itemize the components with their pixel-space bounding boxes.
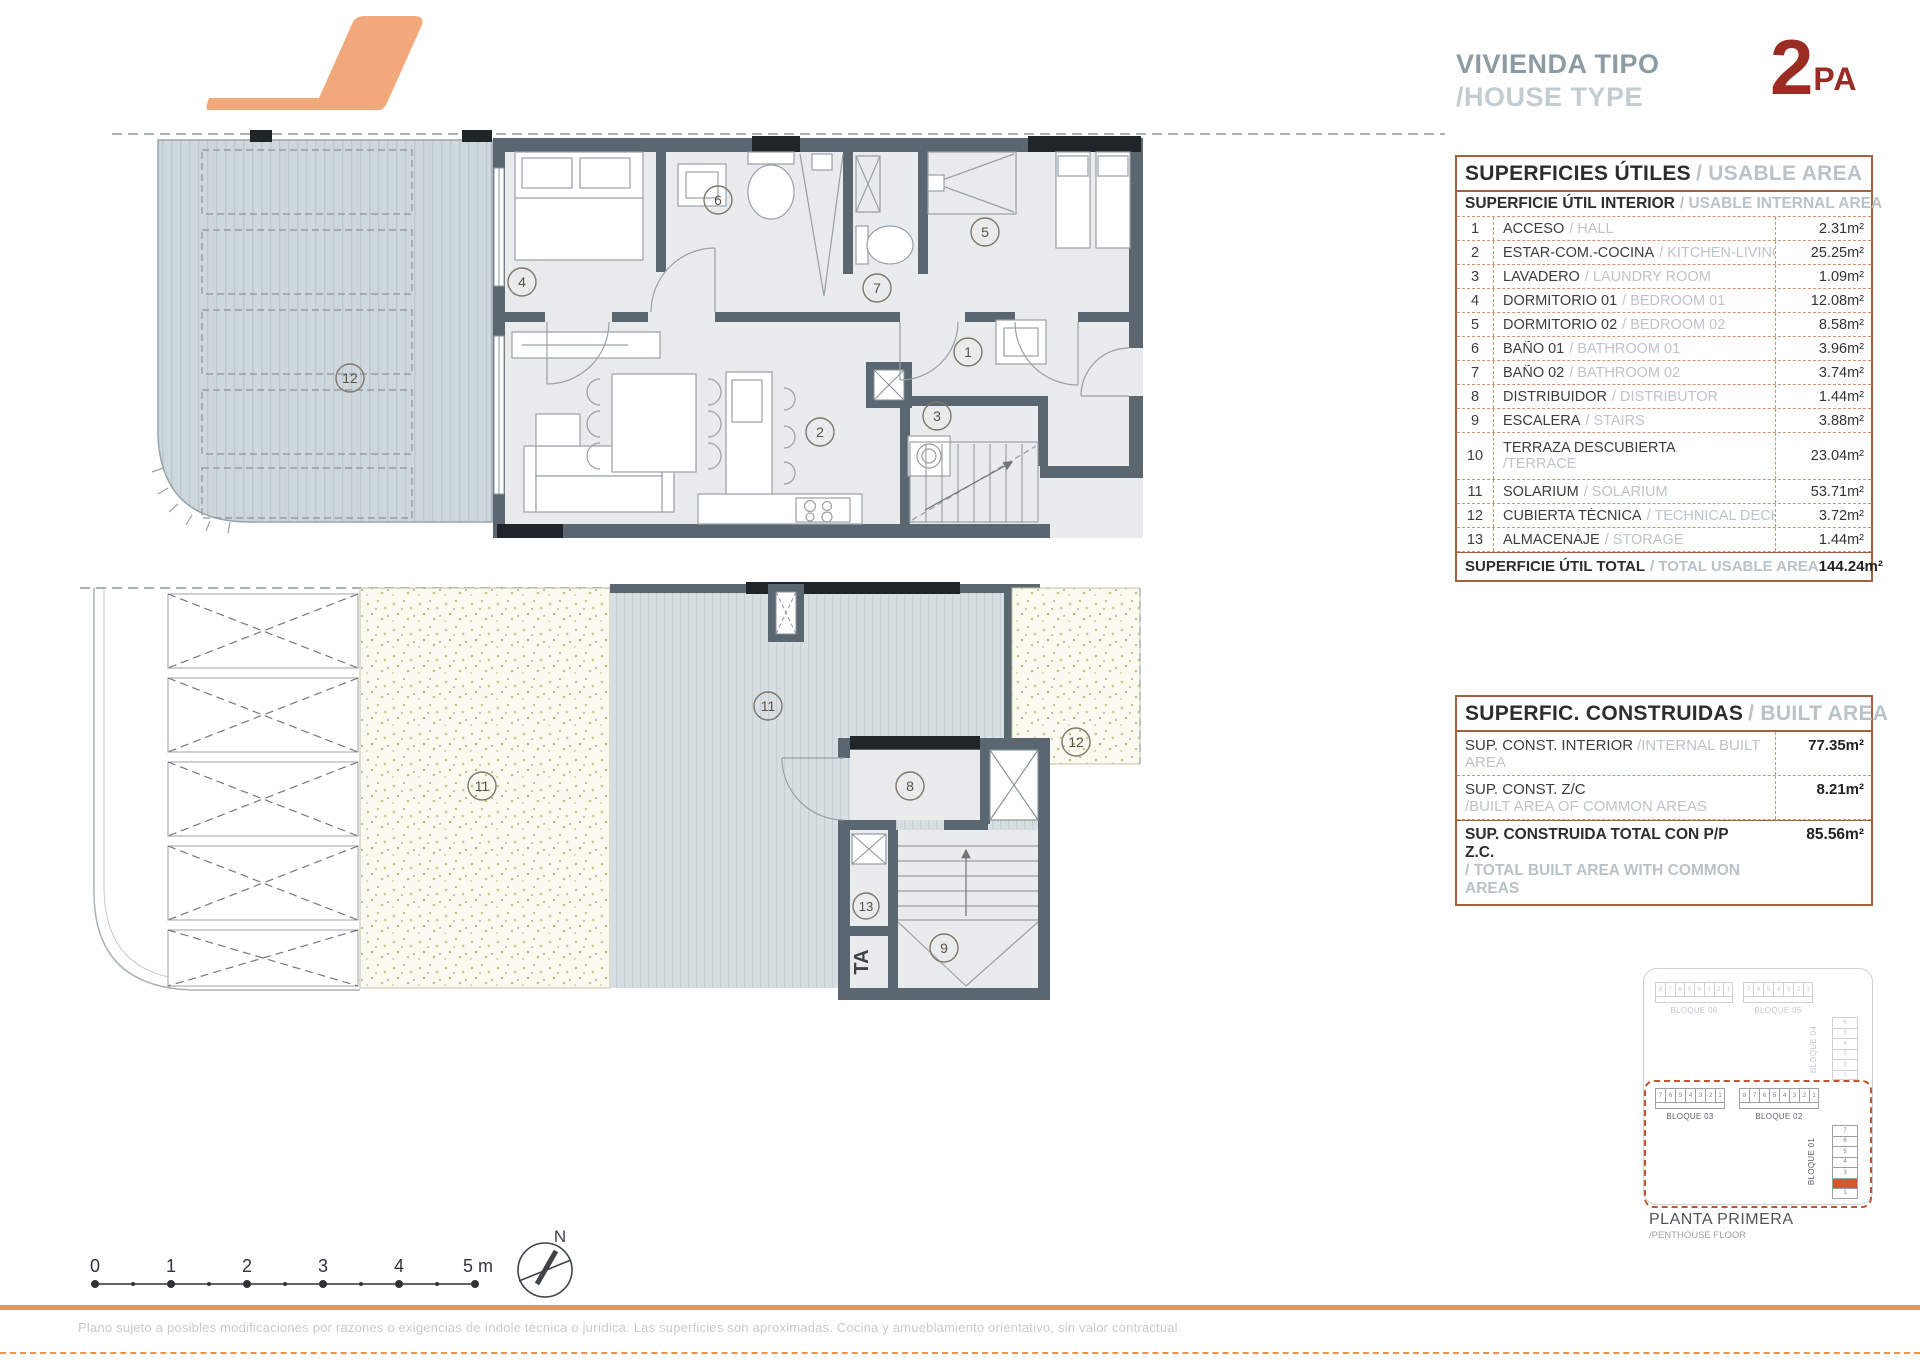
wall-lintel <box>462 130 492 142</box>
built-area-table: SUPERFIC. CONSTRUIDAS/ BUILT AREA SUP. C… <box>1455 695 1873 906</box>
built-row: SUP. CONST. INTERIOR/INTERNAL BUILT AREA… <box>1457 732 1871 776</box>
floor-plans: 12 4 6 7 5 1 3 2 <box>60 116 1460 1016</box>
bloque-05: 7654321 BLOQUE 05 <box>1743 982 1813 1015</box>
scale-tick-label: 3 <box>318 1256 328 1276</box>
logo-swoosh-shape <box>206 16 422 110</box>
area-row: 1ACCESO/ HALL2.31m² <box>1457 217 1871 241</box>
parking-bays <box>168 594 358 986</box>
plan-sheet: VIVIENDA TIPO /HOUSE TYPE 2 PA <box>0 0 1920 1362</box>
area-row: 11SOLARIUM/ SOLARIUM53.71m² <box>1457 480 1871 504</box>
area-row: 4DORMITORIO 01/ BEDROOM 0112.08m² <box>1457 289 1871 313</box>
bloque-02: 87654321 BLOQUE 02 <box>1739 1088 1819 1121</box>
bloque-01: 7 6 5 4 3 2 1 BLOQUE 01 <box>1832 1125 1858 1199</box>
scale-bar: 0 1 2 3 4 5 m <box>70 1240 500 1300</box>
bloque-03: 7654321 BLOQUE 03 <box>1655 1088 1725 1121</box>
built-total-row: SUP. CONSTRUIDA TOTAL CON P/P Z.C./ TOTA… <box>1457 820 1871 904</box>
room-number-label: 1 <box>964 344 972 360</box>
area-row: 8DISTRIBUIDOR/ DISTRIBUTOR1.44m² <box>1457 385 1871 409</box>
scale-tick-label: 5 m <box>463 1256 493 1276</box>
elevator-shaft <box>990 750 1038 820</box>
scale-tick-label: 0 <box>90 1256 100 1276</box>
scale-tick-label: 2 <box>242 1256 252 1276</box>
usable-area-table: SUPERFICIES ÚTILES/ USABLE AREA SUPERFIC… <box>1455 155 1873 582</box>
utility-box <box>852 834 886 864</box>
site-key-plan: 87654321 BLOQUE 06 7654321 BLOQUE 05 654… <box>1643 962 1873 1262</box>
usable-total-row: SUPERFICIE ÚTIL TOTAL/ TOTAL USABLE AREA… <box>1457 552 1871 580</box>
room-number-label: 12 <box>342 370 358 386</box>
house-type-badge: 2 PA <box>1770 28 1857 106</box>
north-compass-icon: N <box>500 1222 590 1312</box>
room-number-label: 11 <box>761 698 776 714</box>
upper-floor-plan: 12 4 6 7 5 1 3 2 <box>112 130 1445 538</box>
wall-lintel <box>850 736 980 749</box>
room-number-label: 5 <box>981 224 989 240</box>
scale-tick-label: 1 <box>166 1256 176 1276</box>
wall-lintel <box>1028 136 1141 152</box>
legal-disclaimer: Plano sujeto a posibles modificaciones p… <box>78 1320 1182 1335</box>
area-row: 5DORMITORIO 02/ BEDROOM 028.58m² <box>1457 313 1871 337</box>
north-label: N <box>554 1227 566 1246</box>
wall-lintel <box>497 524 563 538</box>
area-row: 13ALMACENAJE/ STORAGE1.44m² <box>1457 528 1871 552</box>
wall-lintel <box>752 136 800 152</box>
room-number-label: 4 <box>518 274 526 290</box>
room-number-label: 3 <box>933 408 941 424</box>
area-row: 2ESTAR-COM.-COCINA/ KITCHEN-LIVING25.25m… <box>1457 241 1871 265</box>
room-number-label: 6 <box>714 192 722 208</box>
area-row: 7BAÑO 02/ BATHROOM 023.74m² <box>1457 361 1871 385</box>
area-row: 10TERRAZA DESCUBIERTA/TERRACE23.04m² <box>1457 433 1871 480</box>
title-spanish: VIVIENDA TIPO <box>1456 48 1660 81</box>
page-title: VIVIENDA TIPO /HOUSE TYPE <box>1456 48 1660 114</box>
footer-dashed-line <box>0 1352 1920 1354</box>
wall-lintel <box>250 130 272 142</box>
built-area-title: SUPERFIC. CONSTRUIDAS/ BUILT AREA <box>1457 697 1871 732</box>
chimney-box <box>768 584 804 642</box>
area-row: 9ESCALERA/ STAIRS3.88m² <box>1457 409 1871 433</box>
room-number-label: 9 <box>940 940 948 956</box>
room-number-label: 8 <box>906 778 914 794</box>
site-plan-caption: PLANTA PRIMERA /PENTHOUSE FLOOR <box>1649 1211 1794 1241</box>
room-number-label: 13 <box>859 899 873 914</box>
stairwell-floor <box>898 830 1038 988</box>
room-number-label: 11 <box>475 778 490 794</box>
house-type-number: 2 <box>1770 28 1813 106</box>
bloque-04: 654321 BLOQUE 04 <box>1832 1017 1858 1080</box>
bloque-06: 87654321 BLOQUE 06 <box>1655 982 1733 1015</box>
room-number-label: 2 <box>816 424 824 440</box>
area-row: 3LAVADERO/ LAUNDRY ROOM1.09m² <box>1457 265 1871 289</box>
deck-side-wall <box>1004 584 1012 764</box>
area-row: 6BAÑO 01/ BATHROOM 013.96m² <box>1457 337 1871 361</box>
distributor-floor <box>850 750 980 820</box>
deck-area <box>158 140 492 522</box>
built-row: SUP. CONST. Z/C/BUILT AREA OF COMMON ARE… <box>1457 776 1871 820</box>
area-row: 12CUBIERTA TÉCNICA/ TECHNICAL DECK3.72m² <box>1457 504 1871 528</box>
house-type-suffix: PA <box>1813 61 1857 98</box>
room-number-label: 7 <box>873 280 881 296</box>
usable-area-title: SUPERFICIES ÚTILES/ USABLE AREA <box>1457 157 1871 192</box>
lower-floor-plan: TA 11 11 12 8 13 9 <box>80 582 1140 1000</box>
brand-logo <box>195 10 435 110</box>
title-english: /HOUSE TYPE <box>1456 81 1660 114</box>
scale-tick-label: 4 <box>394 1256 404 1276</box>
footer-accent-bar <box>0 1305 1920 1310</box>
highlighted-unit-cell: 2 <box>1832 1178 1858 1189</box>
usable-internal-subtitle: SUPERFICIE ÚTIL INTERIOR/ USABLE INTERNA… <box>1457 192 1871 217</box>
ta-label: TA <box>851 949 873 974</box>
room-number-label: 12 <box>1068 734 1084 750</box>
